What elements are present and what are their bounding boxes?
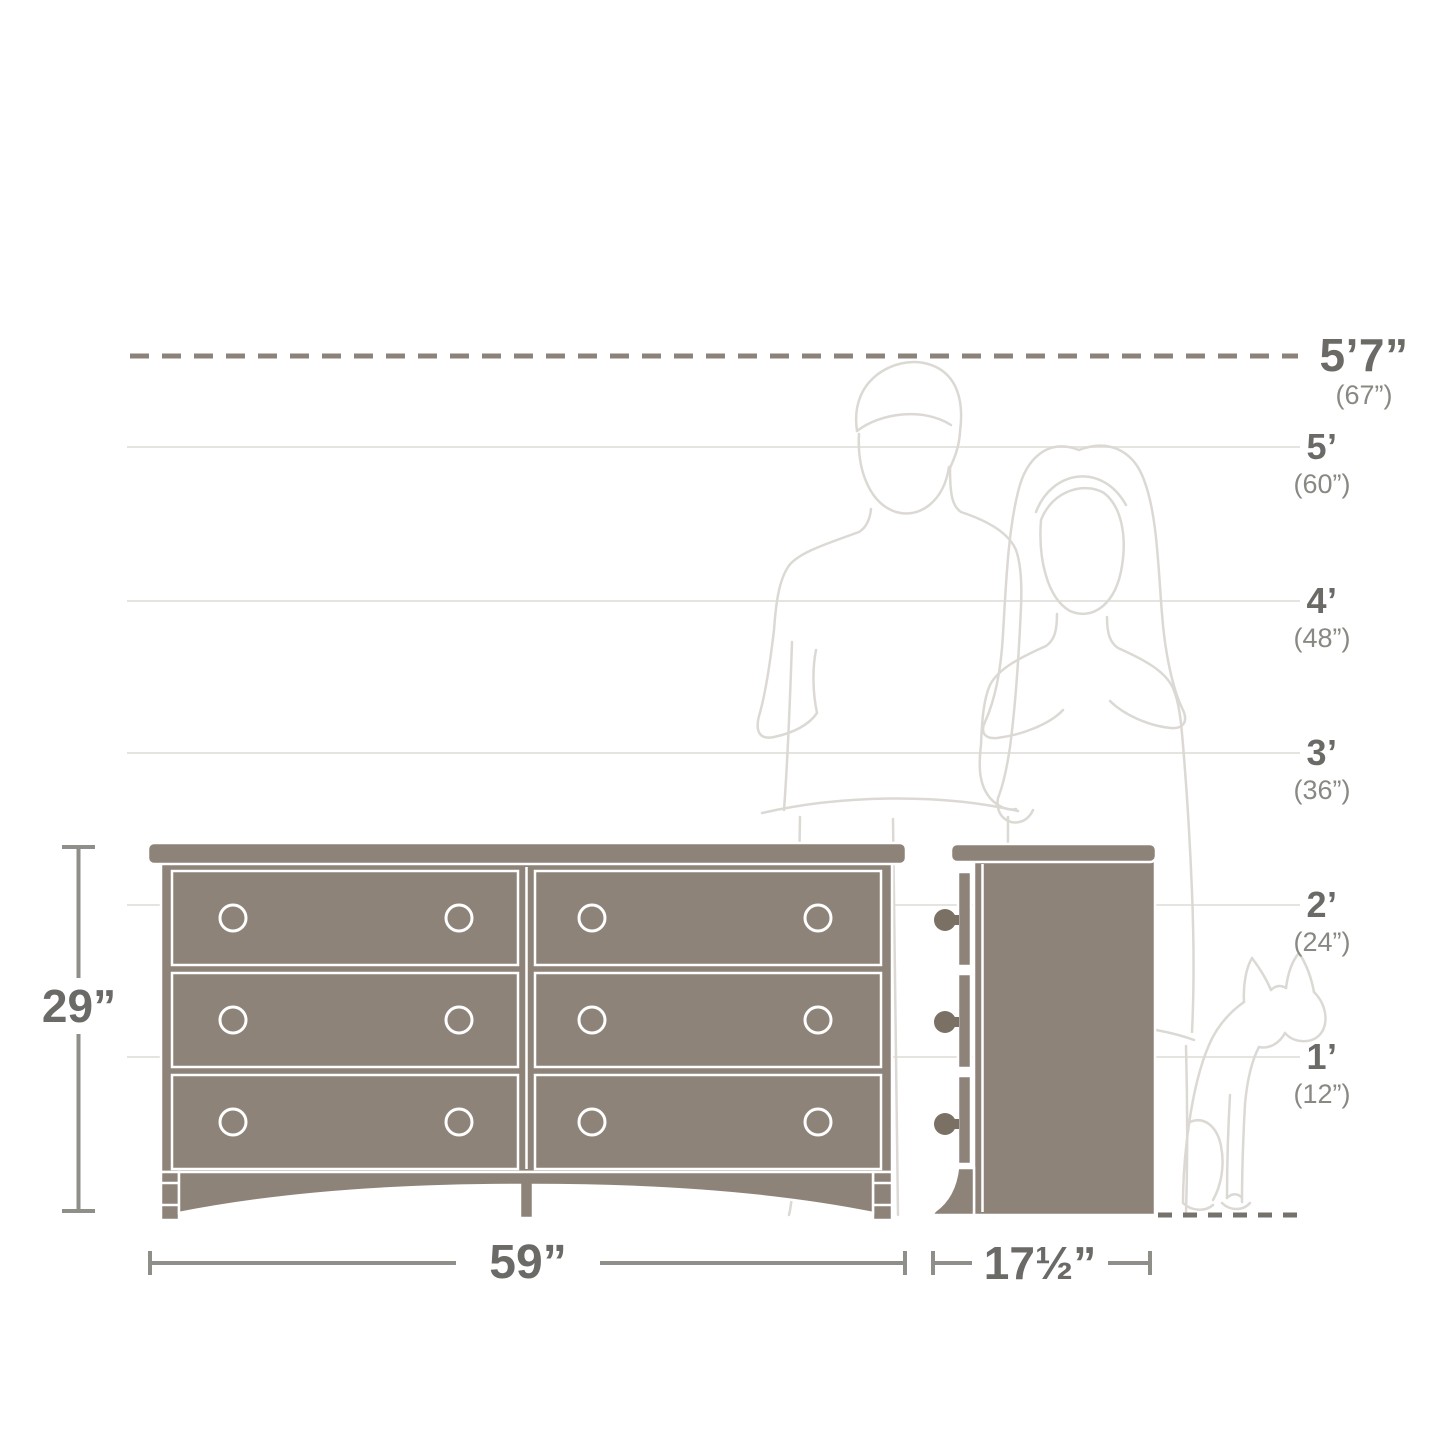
woman-face (1040, 488, 1123, 614)
dog-head-top (1271, 986, 1286, 990)
dog-front-leg (1227, 1095, 1230, 1198)
drawer-knob-side (934, 1113, 956, 1135)
side-front-foot (932, 1168, 974, 1215)
scale-label-secondary: (48”) (1257, 621, 1387, 655)
scale-label-4ft: 4’ (48”) (1257, 581, 1387, 655)
side-drawer-edge (958, 872, 971, 966)
dresser-right-leg (873, 1172, 892, 1220)
scale-label-primary: 5’ (1257, 427, 1387, 467)
drawer-knobs-side (934, 909, 959, 1135)
drawer-knob-side (934, 909, 956, 931)
dresser-side-view (932, 844, 1156, 1215)
scale-label-5ft: 5’ (60”) (1257, 427, 1387, 501)
man-face (859, 434, 949, 513)
drawer-middle-right (535, 973, 881, 1067)
dresser-front-view (148, 843, 906, 1220)
scale-label-primary: 2’ (1257, 885, 1387, 925)
drawer-middle-left (172, 973, 518, 1067)
dresser-side-body (974, 861, 1155, 1215)
side-drawer-edge (958, 974, 971, 1068)
drawer-knob-side (934, 1011, 956, 1033)
scale-label-2ft: 2’ (24”) (1257, 885, 1387, 959)
man-hair-fringe (857, 414, 951, 431)
scale-label-secondary: (12”) (1257, 1077, 1387, 1111)
man-sweater-hem (762, 798, 1018, 813)
dresser-apron-arch (179, 1172, 873, 1218)
scale-label-secondary: (36”) (1257, 773, 1387, 807)
scale-label-primary: 1’ (1257, 1037, 1387, 1077)
dresser-side-top (951, 844, 1156, 862)
width-dimension-label: 59” (456, 1235, 600, 1291)
scale-label-secondary: (60”) (1257, 467, 1387, 501)
dresser-front-top (148, 843, 906, 864)
man-left-arm (758, 509, 871, 738)
dog-left-ear (1244, 958, 1271, 1002)
height-dimension-label: 29” (6, 978, 152, 1034)
man-right-arm (950, 468, 1033, 822)
dresser-left-leg (161, 1172, 179, 1220)
woman-hair-left (983, 446, 1079, 738)
scale-label-primary: 4’ (1257, 581, 1387, 621)
scale-label-secondary: (67”) (1299, 378, 1429, 412)
dog-haunch (1190, 1120, 1223, 1200)
man-inner-leg (893, 819, 898, 1215)
dog-paws (1183, 1194, 1250, 1209)
drawer-top-left (172, 871, 518, 965)
scale-label-primary: 3’ (1257, 733, 1387, 773)
dog-muzzle (1285, 992, 1326, 1041)
scale-label-primary: 5’7” (1299, 332, 1429, 378)
drawer-bottom-right (535, 1075, 881, 1169)
scale-label-5ft7: 5’7” (67”) (1299, 332, 1429, 412)
scale-label-secondary: (24”) (1257, 925, 1387, 959)
scale-label-1ft: 1’ (12”) (1257, 1037, 1387, 1111)
man-torso-side (784, 642, 792, 810)
depth-dimension-label: 17½” (972, 1237, 1108, 1289)
scale-label-3ft: 3’ (36”) (1257, 733, 1387, 807)
dresser-dimension-diagram: 5’7” (67”) 5’ (60”) 4’ (48”) 3’ (36”) 2’… (0, 0, 1445, 1445)
drawer-bottom-left (172, 1075, 518, 1169)
side-drawer-edge (958, 1076, 971, 1164)
drawer-top-right (535, 871, 881, 965)
diagram-canvas (0, 0, 1445, 1445)
